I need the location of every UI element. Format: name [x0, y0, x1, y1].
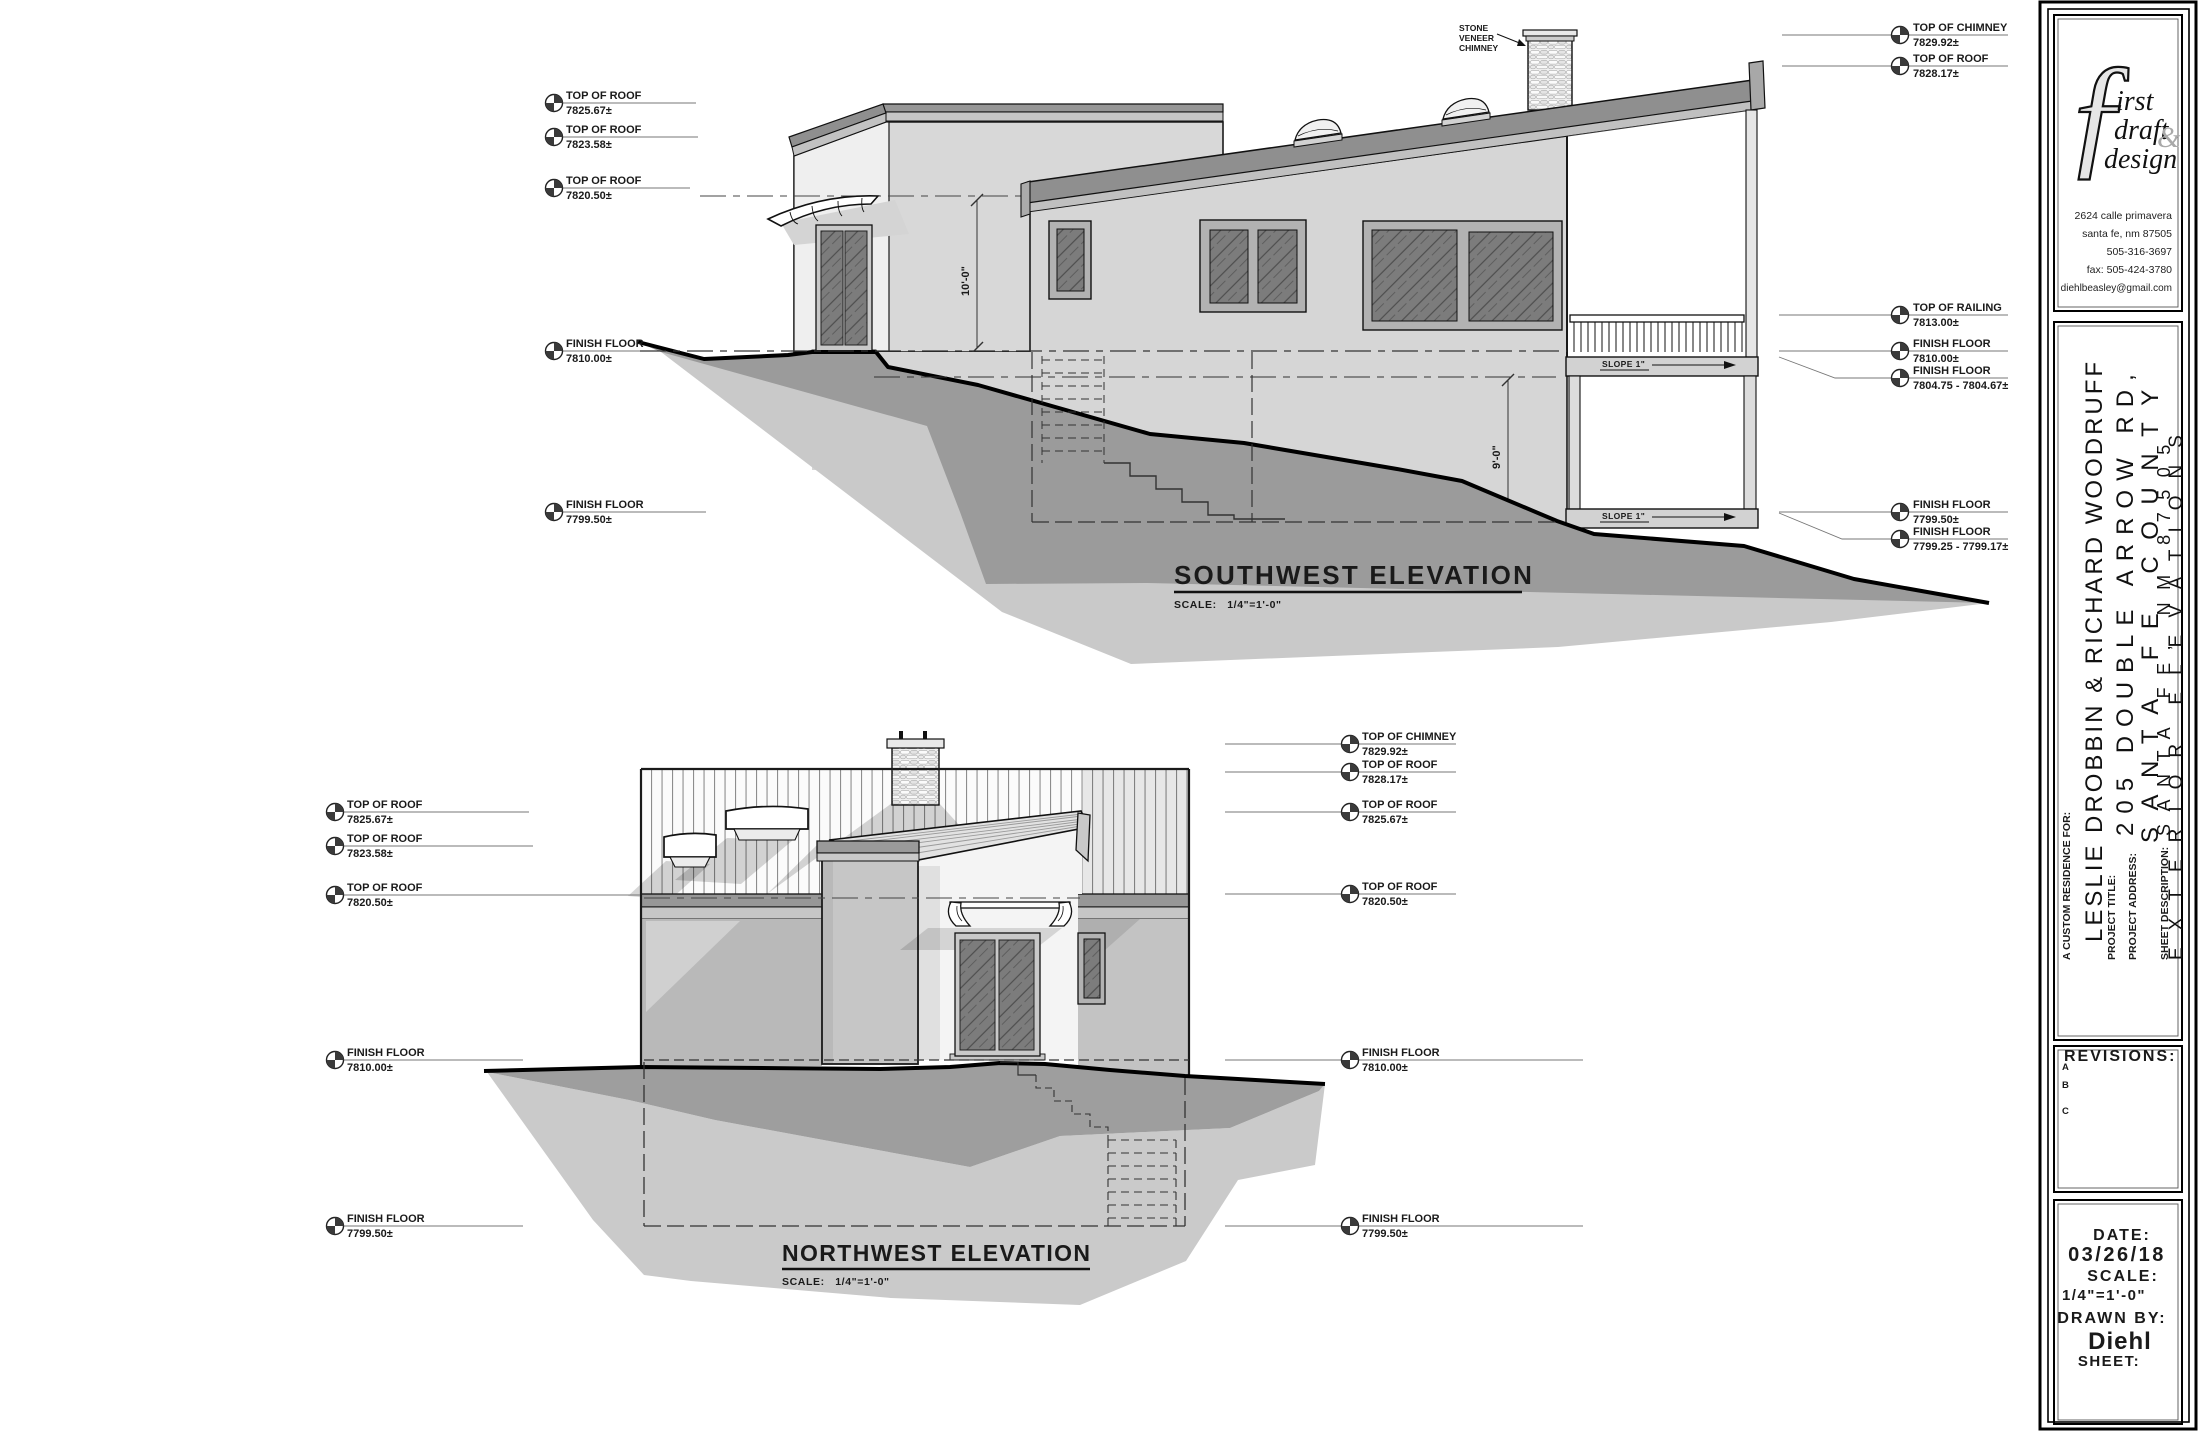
- svg-text:TOP OF ROOF: TOP OF ROOF: [347, 882, 423, 894]
- svg-text:10'-0": 10'-0": [960, 266, 972, 296]
- svg-text:7810.00±: 7810.00±: [347, 1062, 393, 1074]
- svg-text:7823.58±: 7823.58±: [347, 848, 393, 860]
- svg-text:7813.00±: 7813.00±: [1913, 317, 1959, 329]
- svg-text:1/4"=1'-0": 1/4"=1'-0": [2062, 1287, 2146, 1304]
- svg-text:fax: 505-424-3780: fax: 505-424-3780: [2087, 264, 2172, 276]
- svg-text:7820.50±: 7820.50±: [347, 897, 393, 909]
- svg-text:205 DOUBLE ARROW RD,: 205 DOUBLE ARROW RD,: [2112, 365, 2139, 836]
- svg-text:7804.75 - 7804.67±: 7804.75 - 7804.67±: [1913, 380, 2008, 392]
- svg-text:NORTHWEST ELEVATION: NORTHWEST ELEVATION: [782, 1240, 1091, 1266]
- svg-text:7820.50±: 7820.50±: [566, 190, 612, 202]
- svg-text:7810.00±: 7810.00±: [566, 353, 612, 365]
- svg-text:&: &: [2157, 121, 2181, 154]
- svg-text:FINISH FLOOR: FINISH FLOOR: [566, 499, 644, 511]
- svg-text:TOP OF ROOF: TOP OF ROOF: [1913, 53, 1989, 65]
- svg-text:7828.17±: 7828.17±: [1362, 774, 1408, 786]
- svg-text:TOP OF CHIMNEY: TOP OF CHIMNEY: [1362, 731, 1457, 743]
- svg-text:EXTERIOR ELEVATIONS: EXTERIOR ELEVATIONS: [2166, 418, 2187, 960]
- svg-text:DRAWN BY:: DRAWN BY:: [2057, 1310, 2166, 1327]
- svg-text:FINISH FLOOR: FINISH FLOOR: [1362, 1213, 1440, 1225]
- svg-text:REVISIONS:: REVISIONS:: [2064, 1048, 2176, 1065]
- svg-text:CHIMNEY: CHIMNEY: [1459, 43, 1499, 53]
- svg-text:FINISH FLOOR: FINISH FLOOR: [1913, 365, 1991, 377]
- svg-text:7829.92±: 7829.92±: [1913, 37, 1959, 49]
- svg-text:7799.50±: 7799.50±: [566, 514, 612, 526]
- svg-text:7799.25 - 7799.17±: 7799.25 - 7799.17±: [1913, 541, 2008, 553]
- svg-text:TOP OF ROOF: TOP OF ROOF: [347, 833, 423, 845]
- svg-text:TOP OF ROOF: TOP OF ROOF: [1362, 881, 1438, 893]
- svg-text:B: B: [2062, 1080, 2069, 1091]
- svg-text:SLOPE 1": SLOPE 1": [1602, 359, 1645, 369]
- svg-text:PROJECT ADDRESS:: PROJECT ADDRESS:: [2127, 853, 2139, 960]
- svg-text:7799.50±: 7799.50±: [347, 1228, 393, 1240]
- svg-text:SLOPE 1": SLOPE 1": [1602, 511, 1645, 521]
- svg-text:7828.17±: 7828.17±: [1913, 68, 1959, 80]
- svg-text:7823.58±: 7823.58±: [566, 139, 612, 151]
- svg-text:SCALE:: SCALE:: [2087, 1268, 2159, 1285]
- svg-text:7810.00±: 7810.00±: [1362, 1062, 1408, 1074]
- svg-text:FINISH FLOOR: FINISH FLOOR: [1913, 499, 1991, 511]
- svg-text:PROJECT TITLE:: PROJECT TITLE:: [2106, 875, 2118, 960]
- svg-text:A CUSTOM RESIDENCE FOR:: A CUSTOM RESIDENCE FOR:: [2061, 812, 2073, 960]
- svg-text:7825.67±: 7825.67±: [347, 814, 393, 826]
- svg-text:7829.92±: 7829.92±: [1362, 746, 1408, 758]
- svg-text:7820.50±: 7820.50±: [1362, 896, 1408, 908]
- svg-text:A: A: [2062, 1062, 2069, 1073]
- svg-text:TOP OF ROOF: TOP OF ROOF: [1362, 759, 1438, 771]
- svg-text:7810.00±: 7810.00±: [1913, 353, 1959, 365]
- svg-text:diehlbeasley@gmail.com: diehlbeasley@gmail.com: [2061, 283, 2172, 294]
- svg-text:Diehl: Diehl: [2088, 1328, 2152, 1355]
- svg-text:FINISH FLOOR: FINISH FLOOR: [566, 338, 644, 350]
- svg-text:TOP OF ROOF: TOP OF ROOF: [347, 799, 423, 811]
- svg-text:TOP OF ROOF: TOP OF ROOF: [566, 175, 642, 187]
- svg-text:C: C: [2062, 1106, 2069, 1117]
- svg-text:2624 calle primavera: 2624 calle primavera: [2075, 210, 2173, 222]
- svg-text:9'-0": 9'-0": [1491, 445, 1503, 469]
- svg-text:TOP OF ROOF: TOP OF ROOF: [1362, 799, 1438, 811]
- svg-text:7799.50±: 7799.50±: [1913, 514, 1959, 526]
- svg-text:SCALE: 1/4"=1'-0": SCALE: 1/4"=1'-0": [1174, 599, 1282, 611]
- svg-text:SHEET:: SHEET:: [2078, 1353, 2140, 1370]
- svg-text:LESLIE DROBBIN & RICHARD WOODR: LESLIE DROBBIN & RICHARD WOODRUFF: [2081, 359, 2108, 942]
- svg-text:TOP OF RAILING: TOP OF RAILING: [1913, 302, 2002, 314]
- svg-text:SOUTHWEST ELEVATION: SOUTHWEST ELEVATION: [1174, 560, 1534, 590]
- svg-text:TOP OF ROOF: TOP OF ROOF: [566, 90, 642, 102]
- svg-text:SCALE: 1/4"=1'-0": SCALE: 1/4"=1'-0": [782, 1276, 890, 1288]
- svg-text:7825.67±: 7825.67±: [1362, 814, 1408, 826]
- svg-text:505-316-3697: 505-316-3697: [2107, 246, 2173, 258]
- svg-text:VENEER: VENEER: [1459, 33, 1494, 43]
- svg-text:FINISH FLOOR: FINISH FLOOR: [1913, 338, 1991, 350]
- svg-text:TOP OF CHIMNEY: TOP OF CHIMNEY: [1913, 22, 2008, 34]
- svg-text:FINISH FLOOR: FINISH FLOOR: [347, 1213, 425, 1225]
- svg-text:03/26/18: 03/26/18: [2068, 1244, 2166, 1266]
- svg-text:DATE:: DATE:: [2093, 1227, 2151, 1244]
- svg-text:7799.50±: 7799.50±: [1362, 1228, 1408, 1240]
- svg-text:irst: irst: [2116, 86, 2155, 117]
- svg-text:TOP OF ROOF: TOP OF ROOF: [566, 124, 642, 136]
- svg-text:STONE: STONE: [1459, 23, 1488, 33]
- svg-text:FINISH FLOOR: FINISH FLOOR: [1362, 1047, 1440, 1059]
- svg-text:santa fe, nm 87505: santa fe, nm 87505: [2082, 228, 2172, 240]
- svg-text:7825.67±: 7825.67±: [566, 105, 612, 117]
- svg-text:FINISH FLOOR: FINISH FLOOR: [347, 1047, 425, 1059]
- svg-text:FINISH FLOOR: FINISH FLOOR: [1913, 526, 1991, 538]
